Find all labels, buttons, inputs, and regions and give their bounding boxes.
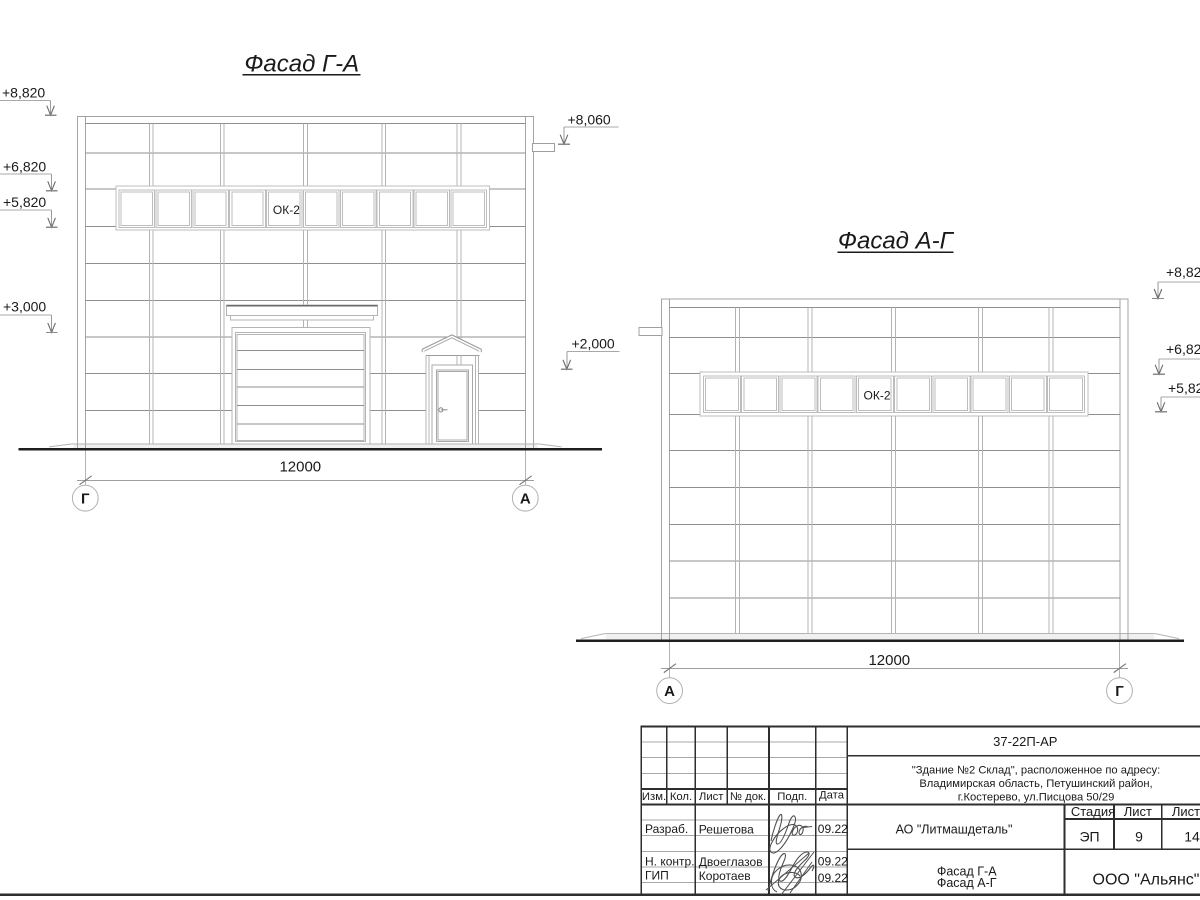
svg-text:Г: Г: [1115, 683, 1124, 700]
svg-text:12000: 12000: [868, 652, 910, 669]
svg-text:+5,820: +5,820: [1168, 380, 1200, 396]
svg-text:+6,820: +6,820: [1166, 341, 1200, 357]
svg-text:"Здание №2 Склад", расположенн: "Здание №2 Склад", расположенное по адре…: [912, 765, 1160, 777]
svg-text:Стадия: Стадия: [1071, 804, 1115, 819]
svg-text:Кол.: Кол.: [670, 791, 692, 803]
svg-text:г.Костерево, ул.Писцова 50/29: г.Костерево, ул.Писцова 50/29: [958, 792, 1115, 804]
svg-text:+2,000: +2,000: [572, 336, 615, 352]
svg-text:Коротаев: Коротаев: [699, 869, 751, 883]
svg-text:Фасад А-Г: Фасад А-Г: [838, 228, 955, 255]
svg-text:+3,000: +3,000: [3, 299, 46, 315]
svg-text:09.22: 09.22: [818, 822, 848, 836]
svg-text:Лист: Лист: [1124, 804, 1152, 819]
svg-text:ЭП: ЭП: [1079, 828, 1099, 844]
svg-text:+6,820: +6,820: [3, 158, 46, 174]
svg-text:Листов: Листов: [1172, 804, 1200, 819]
svg-text:37-22П-АР: 37-22П-АР: [993, 734, 1057, 749]
svg-text:+8,820: +8,820: [2, 85, 45, 101]
svg-text:+8,060: +8,060: [568, 112, 611, 128]
svg-text:Г: Г: [81, 491, 90, 508]
svg-text:Разраб.: Разраб.: [645, 822, 688, 836]
svg-text:Фасад А-Г: Фасад А-Г: [937, 876, 997, 890]
svg-text:АО "Литмашдеталь": АО "Литмашдеталь": [896, 823, 1013, 837]
svg-text:А: А: [664, 683, 675, 700]
svg-text:+8,820: +8,820: [1166, 264, 1200, 280]
svg-text:9: 9: [1135, 829, 1143, 845]
svg-text:14: 14: [1184, 829, 1200, 845]
svg-text:09.22: 09.22: [818, 871, 848, 885]
svg-text:№ док.: № док.: [730, 791, 766, 803]
svg-text:09.22: 09.22: [818, 855, 848, 869]
svg-text:ОК-2: ОК-2: [273, 203, 300, 217]
svg-text:12000: 12000: [279, 459, 321, 476]
svg-text:Решетова: Решетова: [699, 823, 754, 837]
svg-text:ОК-2: ОК-2: [864, 389, 891, 403]
svg-text:Фасад Г-А: Фасад Г-А: [244, 50, 359, 77]
svg-text:ГИП: ГИП: [645, 869, 669, 883]
svg-text:Двоеглазов: Двоеглазов: [699, 855, 763, 869]
svg-text:ООО "Альянс": ООО "Альянс": [1093, 872, 1200, 889]
svg-text:Подп.: Подп.: [777, 791, 807, 803]
svg-text:Владимирская область, Петушинс: Владимирская область, Петушинский район,: [919, 778, 1152, 790]
svg-text:Лист: Лист: [699, 791, 724, 803]
svg-text:А: А: [520, 491, 531, 508]
svg-text:Изм.: Изм.: [642, 791, 666, 803]
svg-text:Н. контр.: Н. контр.: [645, 855, 695, 869]
svg-text:Дата: Дата: [819, 790, 845, 802]
svg-text:+5,820: +5,820: [3, 194, 46, 210]
